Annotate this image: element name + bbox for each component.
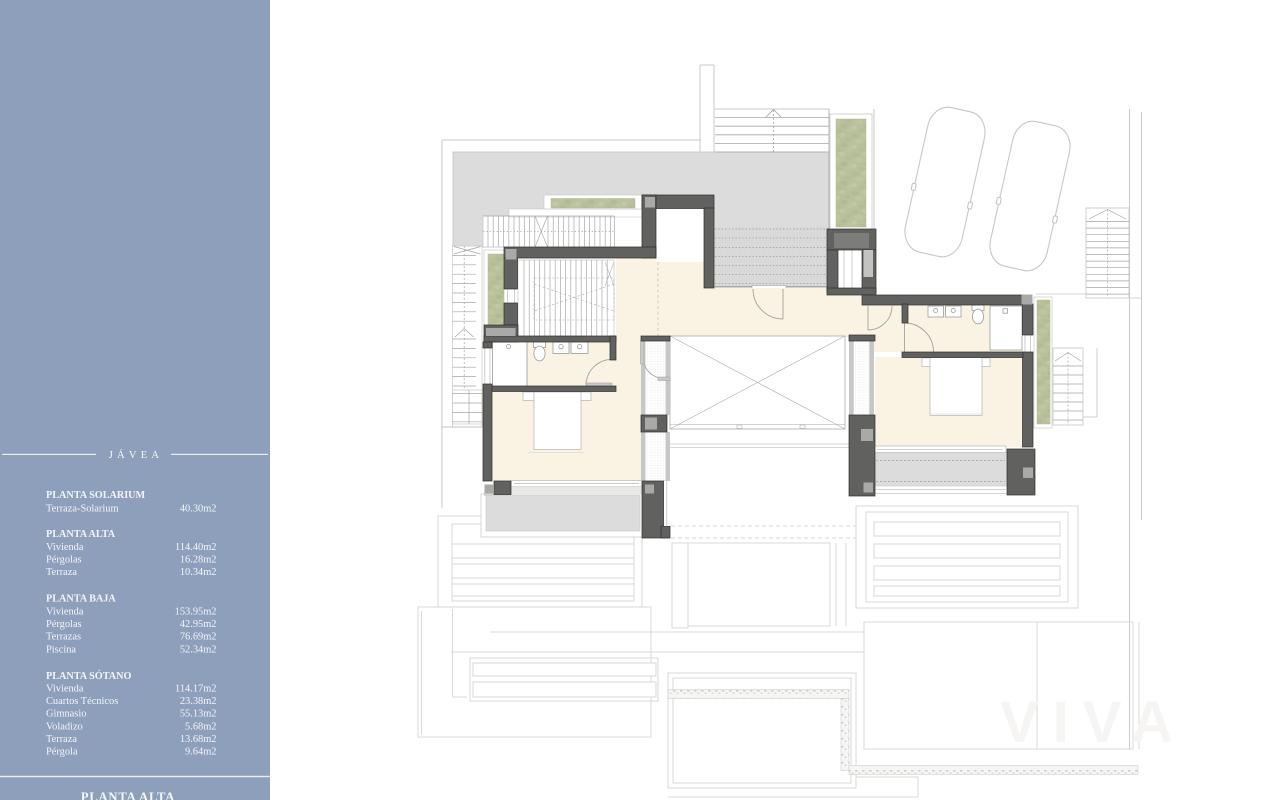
svg-text:Pérgola: Pérgola [46,747,78,758]
svg-text:Terraza: Terraza [46,567,77,578]
svg-text:Cuartos Técnicos: Cuartos Técnicos [46,696,118,707]
svg-text:Piscina: Piscina [46,644,76,655]
svg-text:76.69m2: 76.69m2 [180,632,217,643]
svg-text:42.95m2: 42.95m2 [180,619,217,630]
svg-text:JÁVEA: JÁVEA [109,449,164,461]
svg-text:PLANTA ALTA: PLANTA ALTA [46,529,116,540]
svg-text:10.34m2: 10.34m2 [180,567,217,578]
svg-text:9.64m2: 9.64m2 [185,747,216,758]
svg-text:114.17m2: 114.17m2 [175,684,216,695]
svg-text:Gimnasio: Gimnasio [46,709,86,720]
svg-text:52.34m2: 52.34m2 [180,644,217,655]
svg-text:40.30m2: 40.30m2 [180,504,217,515]
svg-text:13.68m2: 13.68m2 [180,734,217,745]
svg-text:153.95m2: 153.95m2 [175,607,217,618]
svg-text:VIVA: VIVA [1000,690,1187,755]
svg-text:PLANTA SOLARIUM: PLANTA SOLARIUM [46,490,146,501]
svg-text:Pérgolas: Pérgolas [46,619,82,630]
svg-text:Pérgolas: Pérgolas [46,555,82,566]
svg-text:PLANTA BAJA: PLANTA BAJA [46,594,116,605]
svg-text:Terrazas: Terrazas [46,632,81,643]
svg-text:Voladizo: Voladizo [46,721,83,732]
svg-text:16.28m2: 16.28m2 [180,555,217,566]
svg-text:Vivienda: Vivienda [46,542,84,553]
svg-text:PLANTA SÓTANO: PLANTA SÓTANO [46,670,131,682]
svg-text:Vivienda: Vivienda [46,607,84,618]
svg-text:Terraza-Solarium: Terraza-Solarium [46,504,119,515]
svg-text:114.40m2: 114.40m2 [175,542,216,553]
svg-text:55.13m2: 55.13m2 [180,709,217,720]
svg-text:23.38m2: 23.38m2 [180,696,217,707]
svg-text:5.68m2: 5.68m2 [185,721,216,732]
svg-text:PLANTA ALTA: PLANTA ALTA [81,790,175,800]
svg-text:Vivienda: Vivienda [46,684,84,695]
svg-text:Terraza: Terraza [46,734,77,745]
